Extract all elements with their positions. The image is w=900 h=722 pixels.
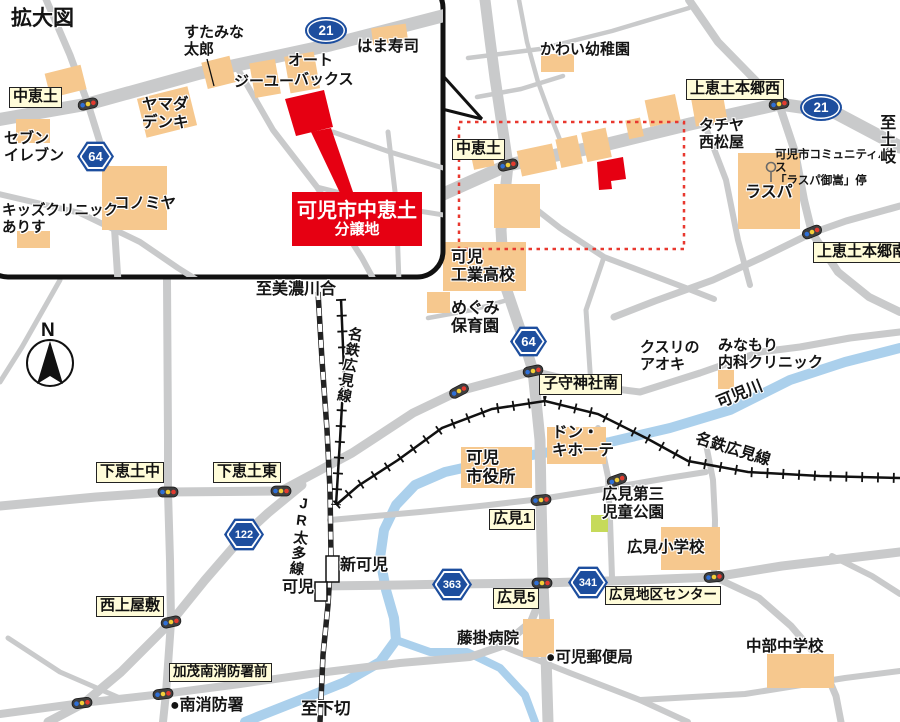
traffic-light-icon (531, 494, 552, 506)
traffic-light-icon (704, 571, 725, 583)
station-shinkani (326, 556, 339, 582)
place-label-hiromi-daisan-park: 広見第三 児童公園 (602, 486, 664, 521)
traffic-light-icon (271, 486, 291, 496)
site-parcel-main (597, 157, 626, 190)
intersection-label-shimoedo-east: 下恵土東 (213, 462, 281, 483)
direction-label-shimogiri: 至下切 (301, 700, 351, 719)
place-label-kawai-kindergarten: かわい幼稚園 (540, 41, 630, 58)
place-label-fujikake-hospital: 藤掛病院 (457, 630, 519, 648)
station-label-shinkani: 新可児 (340, 557, 388, 575)
place-label-kani-post-office: ●可児郵便局 (546, 649, 633, 667)
place-label-chubu-jhs: 中部中学校 (746, 638, 824, 656)
place-label-tachiya-nishimatsuya: タチヤ 西松屋 (699, 117, 744, 151)
traffic-light-icon (532, 578, 552, 588)
traffic-light-icon (158, 487, 178, 497)
intersection-label-nakaedo: 中恵土 (452, 139, 505, 160)
place-label-gu: ジーユー (234, 73, 294, 90)
route-map: 拡大図 中恵土 すたみな 太郎 はま寿司 オート ジーユー バックス ヤマダ デ… (0, 0, 900, 722)
intersection-label-hiromi5: 広見5 (493, 588, 539, 609)
inset-title: 拡大図 (11, 7, 74, 31)
intersection-label-hiromi1: 広見1 (489, 509, 535, 530)
route-21-badge: 21 (800, 94, 842, 121)
place-label-konomiya: コノミヤ (114, 195, 176, 213)
place-label-kids-clinic: キッズクリニック ありす (2, 203, 118, 236)
place-label-sutamina-taro: すたみな 太郎 (184, 24, 244, 58)
intersection-label-shimoedo-naka: 下恵土中 (96, 462, 164, 483)
place-label-laspa: ラスパ (745, 184, 793, 202)
intersection-label-kamiedo-hongo-south: 上恵土本郷南 (813, 242, 900, 263)
intersection-label-kamiedo-hongo-west: 上恵土本郷西 (686, 79, 784, 100)
intersection-label-kamo-fire-station: 加茂南消防署前 (169, 663, 272, 682)
station-label-kani: 可児 (282, 579, 314, 597)
route-64-badge: 64 (510, 326, 547, 357)
site-callout-box: 可児市中恵土 分譲地 (292, 192, 422, 246)
compass-icon (27, 340, 73, 386)
intersection-label-hiromi-center: 広見地区センター (605, 586, 721, 605)
route-21-badge-inset: 21 (305, 17, 347, 44)
intersection-label-nakaedo-inset: 中恵土 (9, 87, 62, 108)
place-label-megumi-nursery: めぐみ 保育園 (451, 300, 499, 336)
compass-north-label: N (41, 320, 55, 342)
place-label-seven-eleven: セブン イレブン (4, 130, 64, 164)
place-label-don-quijote: ドン・ キホーテ (552, 424, 614, 459)
place-label-yamada-denki: ヤマダ デンキ (142, 96, 189, 131)
place-label-kani-kogyo-hs: 可児 工業高校 (451, 249, 515, 285)
route-363-badge: 363 (432, 568, 472, 601)
traffic-light-icon (71, 697, 92, 709)
direction-label-mino-kawai: 至美濃川合 (256, 281, 336, 299)
route-64-badge-inset: 64 (77, 141, 114, 172)
place-label-city-hall: 可児 市役所 (466, 449, 516, 487)
traffic-light-icon (448, 382, 470, 400)
railway-jr-taita (318, 292, 331, 722)
place-label-hiromi-elementary: 広見小学校 (627, 539, 705, 557)
station-kani (315, 582, 327, 601)
route-341-badge: 341 (568, 566, 608, 599)
direction-label-toki: 至土岐 (876, 114, 894, 165)
intersection-label-nishikamiyashiki: 西上屋敷 (96, 596, 164, 617)
traffic-light-icon (160, 615, 182, 629)
place-label-autobacs-1: オート (288, 52, 333, 69)
place-label-hamazushi: はま寿司 (357, 38, 419, 56)
place-label-kusuri-no-aoki: クスリの アオキ (640, 339, 700, 373)
place-label-south-fire-station: ●南消防署 (170, 697, 244, 715)
place-label-minamori-clinic: みなもり 内科クリニック (718, 337, 823, 371)
intersection-label-komori-jinja-south: 子守神社南 (539, 374, 622, 395)
route-122-badge: 122 (224, 518, 264, 551)
place-label-autobacs-2: バックス (294, 71, 354, 88)
